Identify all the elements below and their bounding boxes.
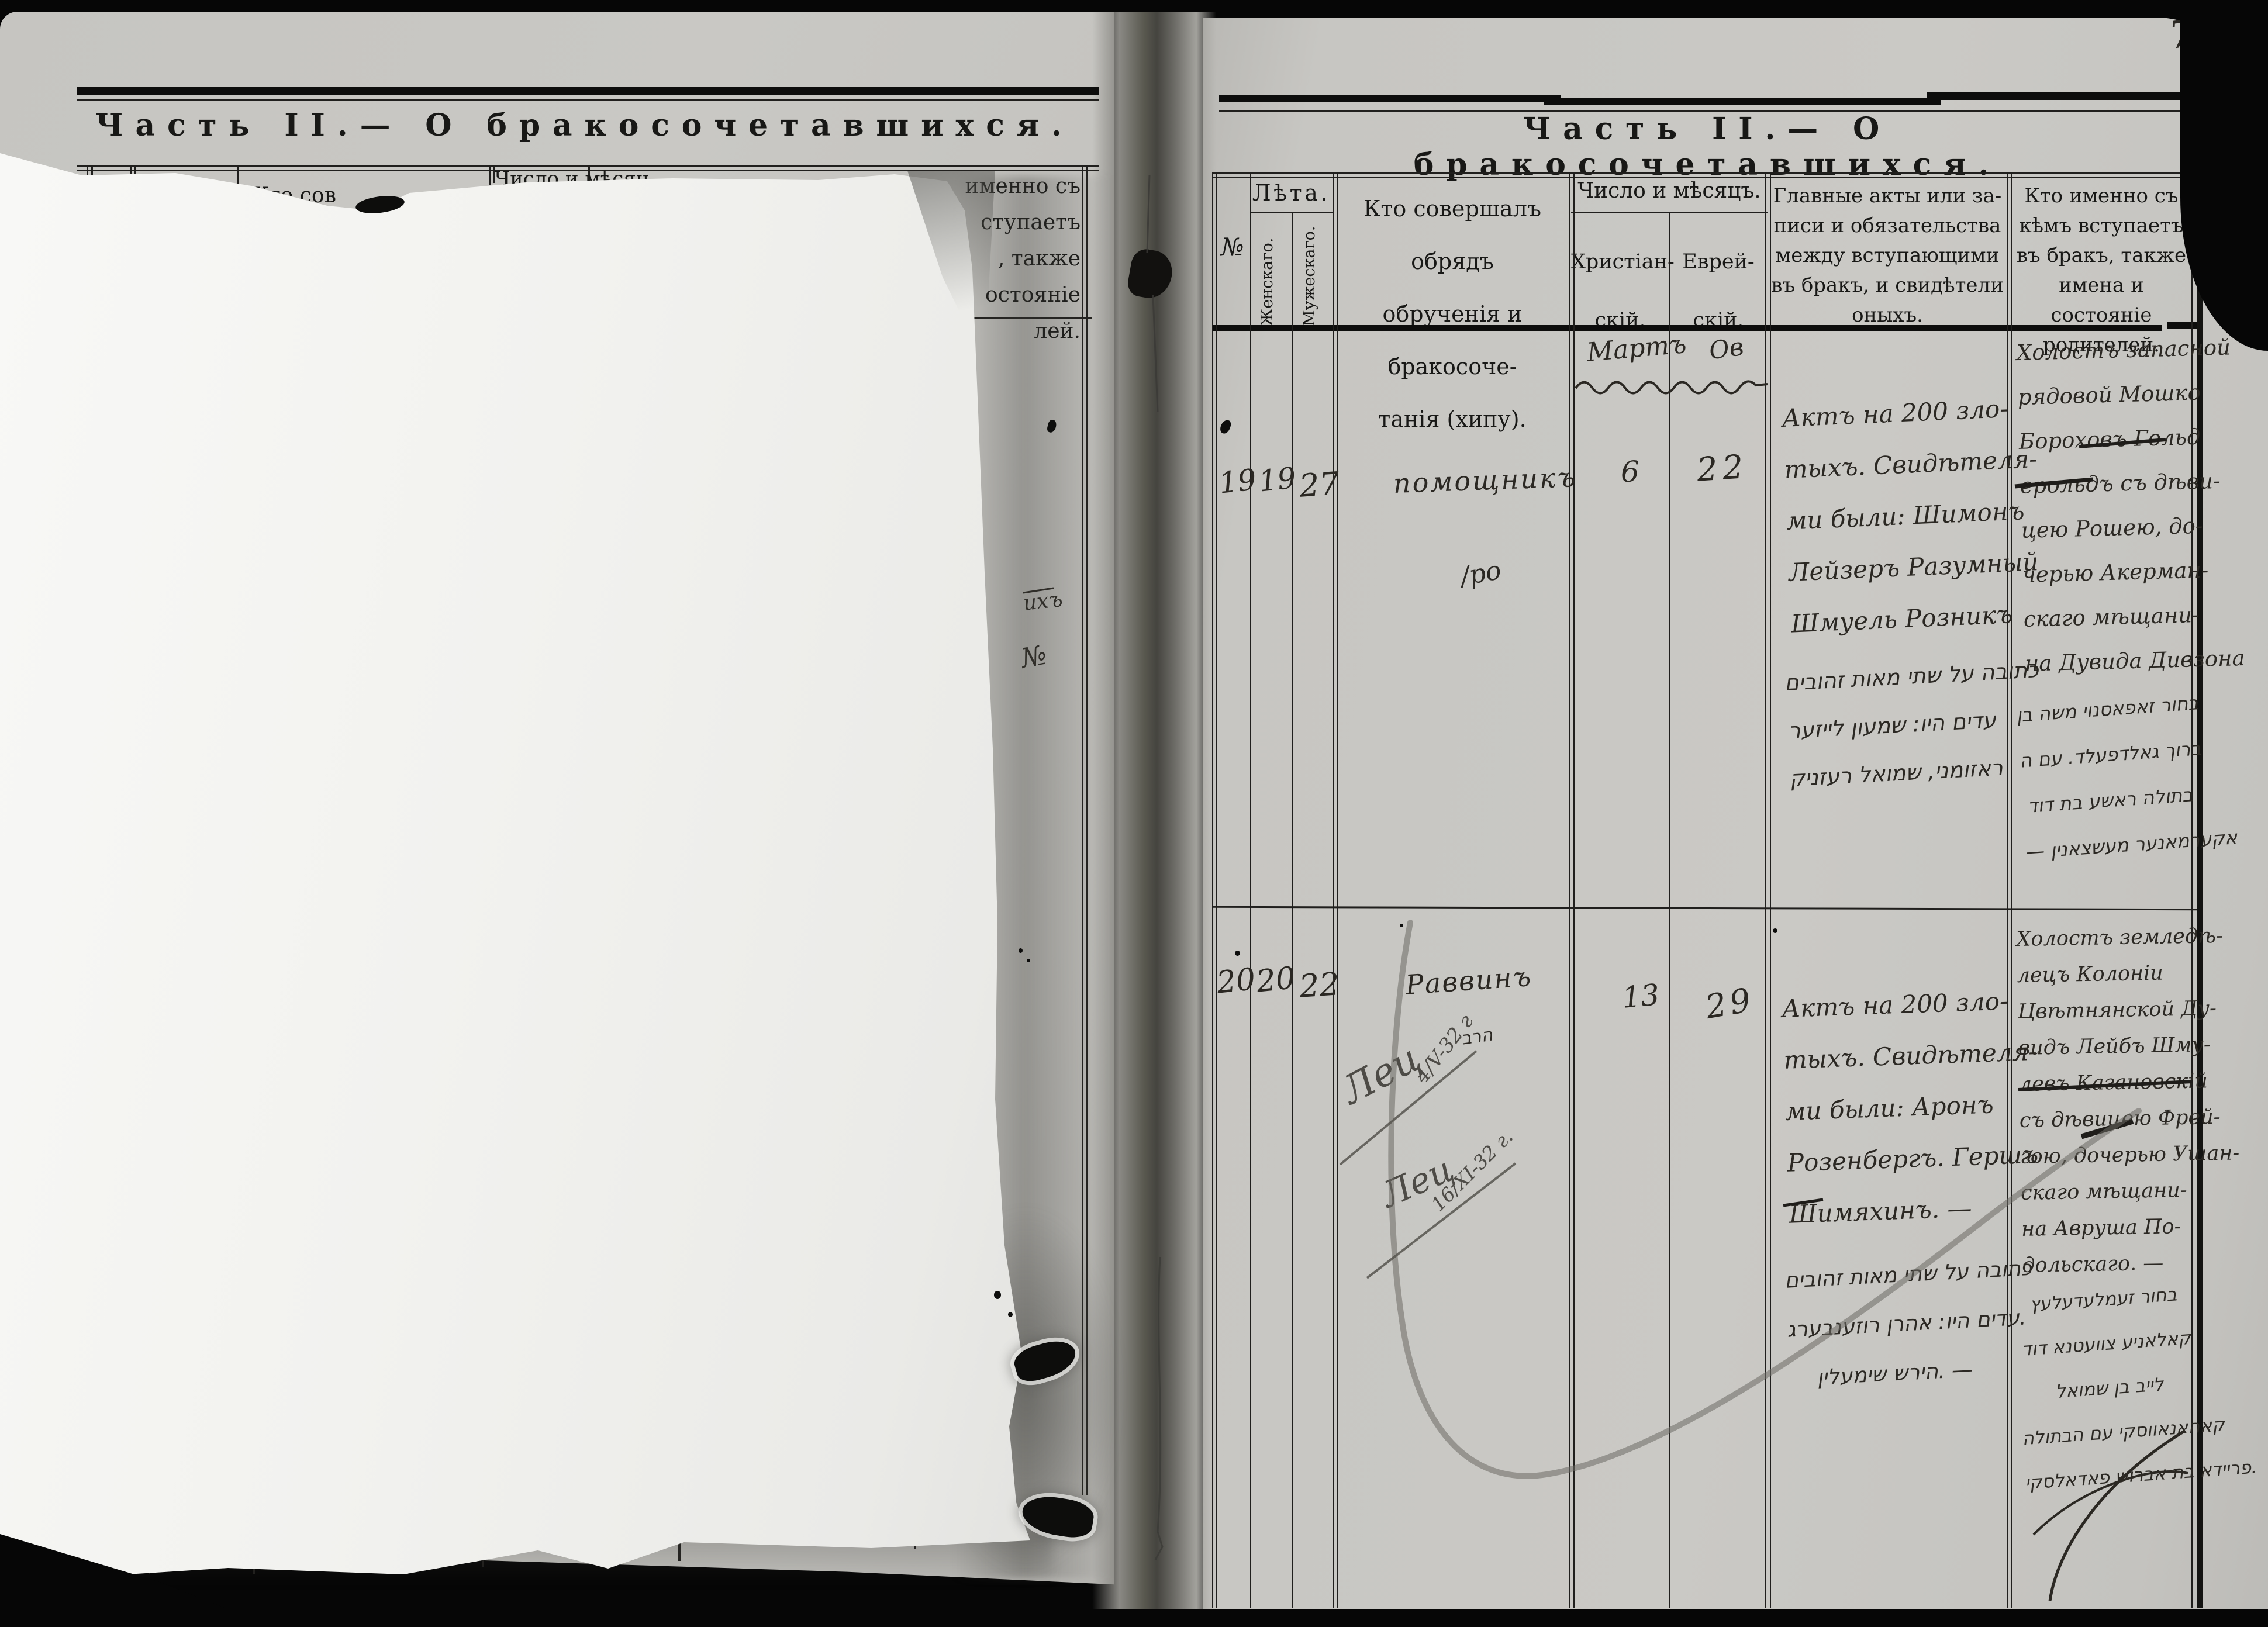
grid-male-officiant-a [1333, 172, 1334, 1608]
text-line: танія (хипу). [1336, 393, 1569, 445]
row20-groom-age: 22 [1298, 965, 1341, 1005]
left-header-rule-thin [77, 99, 1099, 101]
text-line: левъ Кагановскій [2018, 1062, 2238, 1103]
grid-left-b [1216, 172, 1217, 1608]
row20-bride-age: 20 [1255, 961, 1297, 1000]
grid-officiant-date-a [1569, 172, 1570, 1608]
ink-speck-2 [1235, 951, 1240, 956]
col-head-male: Мужескаго. [1300, 217, 1318, 326]
left-right-edge-line-b [1086, 165, 1088, 1495]
row19-month-jewish: Ов [1707, 332, 1745, 365]
row20-day-christian: 13 [1621, 977, 1661, 1014]
text-line: обрученія и бракосоче- [1336, 288, 1569, 393]
grid-christian-jewish [1669, 212, 1670, 1608]
text-line: въ бракъ, и свидѣтели [1770, 271, 2005, 300]
text-line: кѣмъ вступаетъ [2011, 211, 2191, 241]
right-subrule-2 [1212, 177, 2201, 178]
text-line: Шмуель Розникъ [1790, 588, 2045, 650]
right-subrule-1 [1212, 172, 2201, 174]
text-line: писи и обязательства [1770, 211, 2005, 241]
text-line: между вступающими [1770, 241, 2005, 271]
left-header-rule-thick [77, 87, 1099, 95]
col-head-no: № [1215, 233, 1250, 261]
text-line: Главные акты или за- [1770, 181, 2005, 211]
text-line: Кто именно съ [2011, 181, 2191, 211]
col-head-officiant: Кто совершалъ обрядъобрученія и бракосоч… [1336, 182, 1569, 445]
row20-who-hebrew: בחור זעמלעדעלעץקאלאניע צוועטנא דודלייב ב… [2011, 1271, 2208, 1505]
text-line: имена и состояніе [2011, 271, 2191, 330]
grid-date-acts-a [1765, 172, 1766, 1608]
col-head-female: Женскаго. [1258, 217, 1276, 326]
text-line: Актъ на 200 зло- [1781, 975, 2036, 1035]
row19-no: 19 [1217, 462, 1258, 500]
row20-no: 20 [1215, 962, 1257, 1001]
row19-who-hebrew: בחור זאפאסנוי משה בןברוך גאלדפעלד. עם הב… [2015, 680, 2203, 875]
ink-dot-1 [994, 1291, 1001, 1299]
text-line: Цвѣтнянской Ду- [2017, 990, 2237, 1030]
left-handwriting-no-sign: № [1019, 638, 1049, 674]
row19-acts-text: Актъ на 200 зло-тыхъ. Свидѣтеля-ми были:… [1781, 382, 2045, 650]
text-line: Розенбергъ. Гершъ [1786, 1129, 2041, 1189]
grid-date-acts-b [1770, 172, 1771, 1608]
text-line: съ дѣвицею Фрей- [2019, 1099, 2239, 1139]
row19-acts-hebrew: כתובה על שתי מאות זהוביםעדים היו: שמעון … [1783, 648, 2001, 803]
text-line: гою, дочерью Ушан- [2020, 1135, 2239, 1175]
text-line: тыхъ. Свидѣтеля- [1783, 1026, 2038, 1086]
grid-no-leta [1250, 172, 1251, 1608]
left-right-edge-line-a [1082, 165, 1083, 1495]
ink-speck-3 [1773, 928, 1777, 933]
grid-female-male [1292, 212, 1293, 1608]
row20-acts-text: Актъ на 200 зло-тыхъ. Свидѣтеля-ми были:… [1781, 975, 2043, 1241]
ink-speck-4 [1400, 924, 1403, 927]
right-header-rule-a [1219, 95, 1561, 102]
background-bottom-strip [0, 1609, 2268, 1627]
row20-acts-hebrew: כתובה על שתי מאות זהוביםעדים היו: אהרן ר… [1783, 1246, 2001, 1404]
right-header-rule-c [1927, 92, 2202, 100]
text-line: на Авруша По- [2021, 1207, 2241, 1248]
text-line: ерольдъ съ дѣви- [2020, 458, 2241, 509]
right-page-title: Часть II.— О бракосочетавшихся. [1240, 111, 2175, 182]
text-line: ми были: Аронъ [1784, 1077, 2039, 1138]
text-line: Еврей- [1669, 233, 1768, 291]
text-line: Шимяхинъ. — [1788, 1180, 2043, 1241]
text-line: лецъ Колоніи [2017, 954, 2236, 994]
text-line: Холостъ земледѣ- [2016, 917, 2236, 958]
col-head-leta: Лѣта. [1250, 180, 1333, 206]
row19-officiant: помощникъ [1393, 461, 1577, 499]
page-edge-dot-a [1019, 948, 1023, 953]
text-line: Кто совершалъ обрядъ [1336, 182, 1569, 288]
text-line: скаго мѣщани- [2021, 1171, 2241, 1211]
left-handwriting-fragment: ихъ [1022, 588, 1064, 616]
text-line: рядовой Мошко [2017, 369, 2239, 420]
text-line: цею Рошею, до- [2021, 503, 2242, 553]
text-line: видъ Лейбъ Шму- [2018, 1026, 2238, 1066]
ink-dot-2 [1008, 1312, 1013, 1317]
text-line: скаго мѣщани- [2023, 592, 2245, 642]
row19-groom-age: 27 [1298, 465, 1341, 505]
col-head-date: Число и мѣсяцъ. [1571, 179, 1768, 203]
left-col-line-3a [489, 165, 491, 185]
text-line: Холостъ запасной [2016, 325, 2238, 375]
text-line: въ бракъ, также [2011, 241, 2191, 271]
row19-bride-age: 19 [1257, 461, 1297, 498]
col-head-acts: Главные акты или за-писи и обязательства… [1770, 181, 2005, 330]
text-line: Бороховъ Гольд [2018, 414, 2240, 464]
grid-male-officiant-b [1337, 172, 1338, 1608]
grid-left-a [1212, 172, 1213, 1608]
text-line: черью Акерман- [2022, 547, 2243, 597]
right-header-rule-b [1544, 98, 1941, 105]
row19-day-christian: 6 [1621, 455, 1639, 489]
photo-of-register-spread: Часть II.— О бракосочетавшихся. Лѣта. Кт… [0, 0, 2268, 1627]
blank-cover-sheet [0, 149, 1047, 1581]
row19-day-jewish: 22 [1696, 448, 1749, 489]
grid-officiant-date-b [1573, 172, 1575, 1608]
left-page-title: Часть II.— О бракосочетавшихся. [88, 108, 1082, 143]
text-line: на Дувида Дивзона [2024, 636, 2246, 686]
row20-who-text: Холостъ земледѣ-лецъ КолоніиЦвѣтнянской … [2016, 917, 2242, 1283]
row19-who-text: Холостъ запаснойрядовой МошкоБороховъ Го… [2016, 325, 2245, 686]
page-edge-dot-b [1027, 959, 1030, 962]
text-line: Христіан- [1571, 233, 1669, 291]
